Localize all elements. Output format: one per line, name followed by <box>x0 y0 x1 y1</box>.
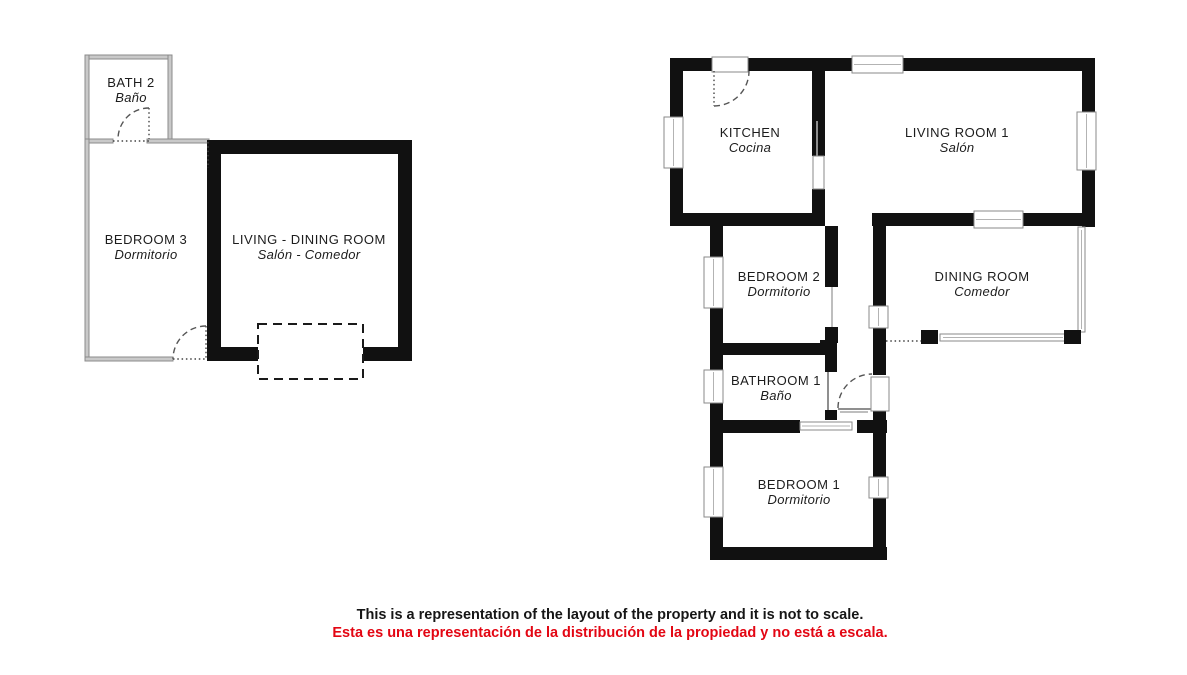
disclaimer: This is a representation of the layout o… <box>332 607 887 642</box>
room-label-bedroom2-en: BEDROOM 2 <box>738 269 821 284</box>
wall <box>710 547 887 560</box>
wall <box>820 340 837 355</box>
door-opening <box>813 156 824 189</box>
wall <box>1023 213 1095 226</box>
wall <box>710 517 723 547</box>
room-label-bedroom1-es: Dormitorio <box>768 492 831 507</box>
thin-wall <box>85 55 89 143</box>
window <box>704 467 723 517</box>
door-swing-arc <box>838 374 872 408</box>
wall <box>748 58 853 71</box>
window <box>852 56 903 73</box>
thin-wall <box>168 55 172 143</box>
room-label-living-dining-en: LIVING - DINING ROOM <box>232 232 386 247</box>
room-label-dining-es: Comedor <box>954 284 1010 299</box>
window <box>869 477 888 498</box>
wall <box>398 140 412 361</box>
wall <box>1064 330 1081 344</box>
room-label-bedroom2-es: Dormitorio <box>748 284 811 299</box>
wall <box>710 226 723 257</box>
window <box>704 257 723 308</box>
wall <box>710 343 822 355</box>
room-label-kitchen-en: KITCHEN <box>720 125 781 140</box>
wall <box>207 140 412 154</box>
thin-wall <box>147 139 209 143</box>
door-opening <box>871 377 889 411</box>
room-label-bath2-en: BATH 2 <box>107 75 155 90</box>
wall <box>903 58 1095 71</box>
wall <box>873 411 886 430</box>
room-label-bedroom3-es: Dormitorio <box>115 247 178 262</box>
room-label-bedroom1-en: BEDROOM 1 <box>758 477 841 492</box>
wall <box>825 355 837 372</box>
room-label-living1-en: LIVING ROOM 1 <box>905 125 1009 140</box>
wall <box>812 71 825 156</box>
left-floor-plan: BATH 2 Baño BEDROOM 3 Dormitorio LIVING … <box>85 55 412 379</box>
thin-wall <box>85 55 172 59</box>
wall <box>670 58 712 71</box>
room-label-kitchen-es: Cocina <box>729 140 771 155</box>
threshold-glazing <box>800 422 852 430</box>
door-swing-arc <box>714 71 749 106</box>
window <box>664 117 683 168</box>
floorplan-page: BATH 2 Baño BEDROOM 3 Dormitorio LIVING … <box>0 0 1187 675</box>
wall <box>873 433 886 477</box>
room-label-bathroom1-es: Baño <box>760 388 792 403</box>
wall <box>710 403 723 467</box>
window <box>869 306 888 328</box>
door-swing-arc <box>118 108 149 139</box>
room-label-living1-es: Salón <box>940 140 975 155</box>
wall <box>873 328 886 375</box>
thin-wall <box>85 357 173 361</box>
wall <box>710 308 723 370</box>
room-label-dining-en: DINING ROOM <box>934 269 1029 284</box>
wall <box>873 226 886 306</box>
wall <box>921 330 938 344</box>
window <box>974 211 1023 228</box>
room-label-bedroom3-en: BEDROOM 3 <box>105 232 188 247</box>
right-floor-plan: KITCHEN Cocina LIVING ROOM 1 Salón BEDRO… <box>664 56 1096 560</box>
wall <box>1082 71 1095 112</box>
wall <box>670 71 683 117</box>
room-label-living-dining-es: Salón - Comedor <box>258 247 361 262</box>
window <box>704 370 723 403</box>
wall <box>207 140 221 361</box>
terrace-dashed-outline <box>258 324 363 379</box>
wall <box>670 213 825 226</box>
room-label-bathroom1-en: BATHROOM 1 <box>731 373 821 388</box>
wall <box>825 226 838 287</box>
floorplan-drawing: BATH 2 Baño BEDROOM 3 Dormitorio LIVING … <box>0 0 1187 675</box>
door-swing-arc <box>173 326 206 359</box>
door-opening <box>712 57 748 72</box>
room-label-bath2-es: Baño <box>115 90 147 105</box>
thin-wall <box>85 139 89 361</box>
wall <box>873 498 886 547</box>
wall <box>710 420 800 433</box>
wall <box>872 213 975 226</box>
wall <box>825 410 837 420</box>
disclaimer-en: This is a representation of the layout o… <box>332 607 887 625</box>
disclaimer-es: Esta es una representación de la distrib… <box>332 625 887 643</box>
window <box>1077 112 1096 170</box>
